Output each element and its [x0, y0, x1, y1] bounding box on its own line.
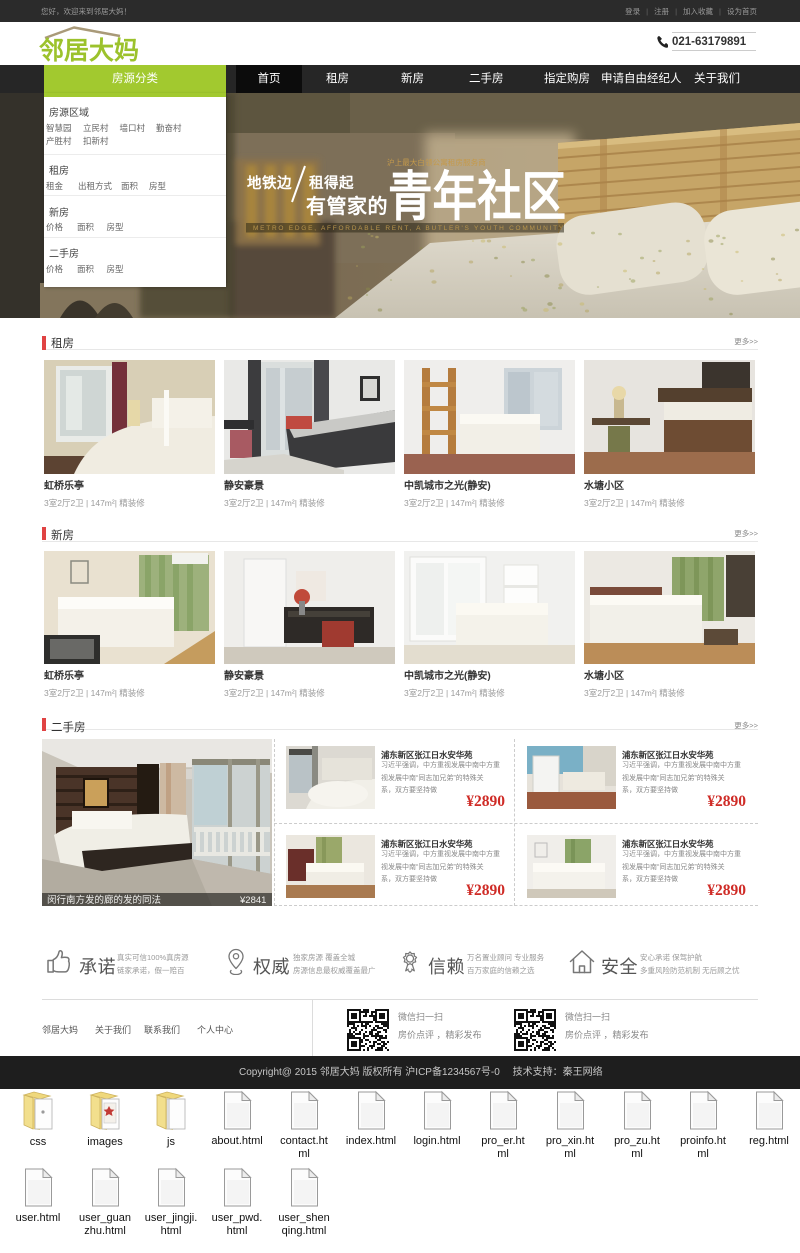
svg-text:青年社区: 青年社区	[388, 168, 566, 227]
svg-text:邻居大妈: 邻居大妈	[39, 37, 139, 65]
svg-text:沪上最大白领公寓租房服务商: 沪上最大白领公寓租房服务商	[387, 157, 486, 167]
svg-text:有管家的: 有管家的	[306, 194, 388, 218]
svg-text:闵行南方发的廊的发的同法: 闵行南方发的廊的发的同法	[47, 894, 161, 906]
svg-text:地铁边: 地铁边	[247, 174, 292, 192]
svg-text:¥2841: ¥2841	[239, 895, 266, 906]
svg-text:租得起: 租得起	[309, 174, 354, 192]
